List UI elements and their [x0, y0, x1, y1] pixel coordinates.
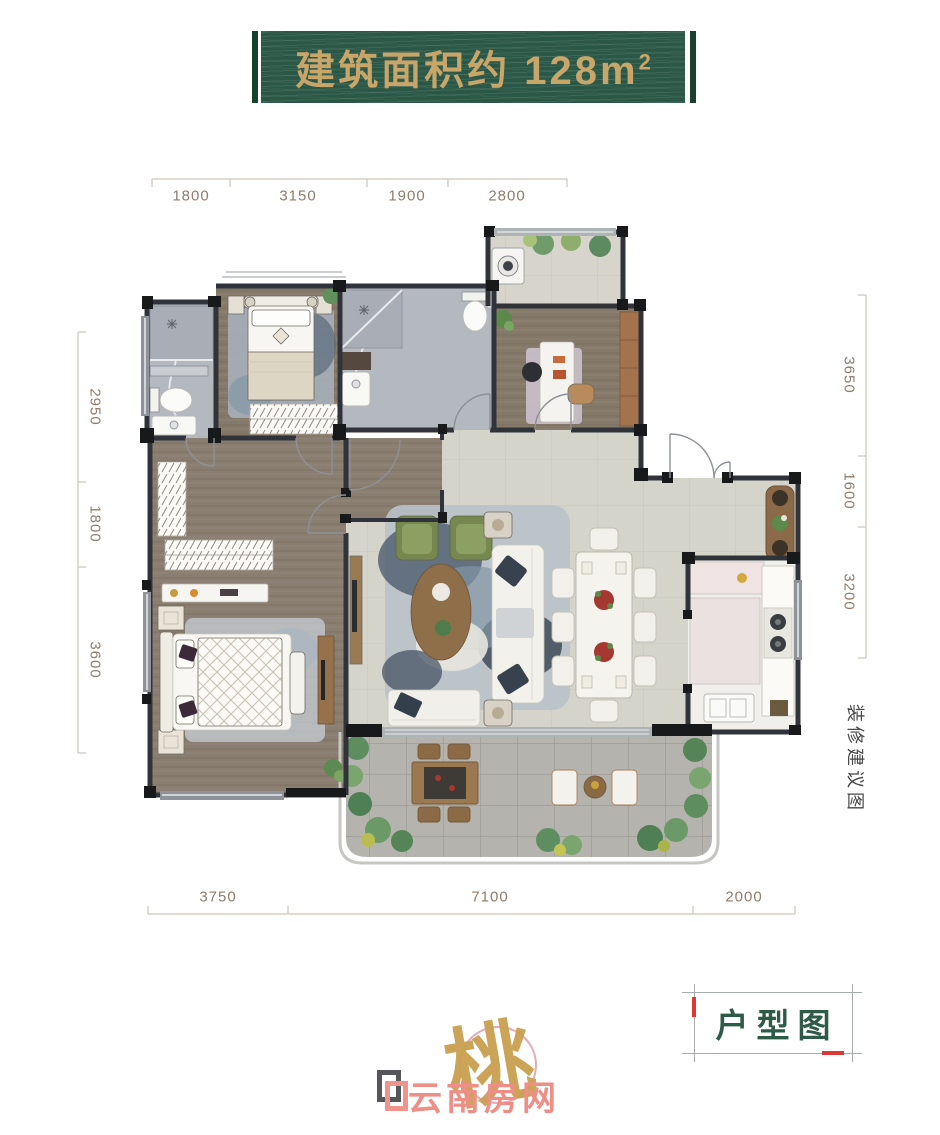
- study-wardrobe: [620, 312, 639, 426]
- outdoor-chair: [448, 744, 470, 759]
- study-desk: [540, 342, 574, 422]
- bedroom2-furniture: [228, 288, 339, 434]
- dim-left-2: 1800: [87, 505, 104, 542]
- bay-window: [222, 272, 346, 277]
- toilet-icon: [463, 301, 487, 331]
- dining-chair: [634, 568, 656, 598]
- watermark-logo-square-pink: [385, 1081, 408, 1111]
- bath1-counter: [150, 366, 208, 376]
- outdoor-chair: [418, 807, 440, 822]
- dim-left-1: 2950: [87, 388, 104, 425]
- kitchen-fixtures: [690, 562, 794, 722]
- dining-chair: [590, 700, 618, 722]
- desk-chair: [522, 362, 542, 382]
- dining-chair: [552, 568, 574, 598]
- coffee-table: [411, 564, 471, 660]
- dim-top-4: 2800: [488, 188, 525, 205]
- kitchen-sink: [704, 694, 754, 722]
- floorplan-page: 建筑面积约 128m2: [0, 0, 940, 1135]
- dim-left-3: 3600: [87, 641, 104, 678]
- outdoor-chair: [418, 744, 440, 759]
- dim-right-2: 1600: [841, 472, 858, 509]
- armchair: [396, 516, 438, 560]
- nightstand: [158, 606, 184, 630]
- floorplan-drawing: [0, 0, 940, 1135]
- dim-bottom-2: 7100: [471, 889, 508, 906]
- dining-chair: [552, 612, 574, 642]
- shower-area: [150, 306, 213, 360]
- bed-bench: [290, 652, 305, 714]
- dim-top-2: 3150: [279, 188, 316, 205]
- bowl-icon: [772, 490, 788, 506]
- dim-top-1: 1800: [172, 188, 209, 205]
- dining-chair: [552, 656, 574, 686]
- toilet-tank: [150, 388, 159, 412]
- dim-bottom-1: 3750: [199, 889, 236, 906]
- daybed-bench: [388, 690, 480, 726]
- tv-icon: [321, 660, 325, 700]
- toilet-icon: [160, 388, 192, 412]
- watermark-site-name: 云南房网: [408, 1071, 560, 1120]
- dim-right-3: 3200: [841, 573, 858, 610]
- bath2-sink: [342, 372, 370, 406]
- sofa: [492, 545, 544, 703]
- plant-icon: [589, 235, 611, 257]
- master-bed-headboard: [160, 632, 173, 732]
- entry-door: [670, 434, 714, 478]
- dining-chair: [590, 528, 618, 550]
- kitchen-cabinet: [690, 562, 764, 594]
- bowl-icon: [772, 540, 788, 556]
- bed2-blanket: [248, 352, 314, 400]
- dining-chair: [634, 656, 656, 686]
- dining-chair: [634, 612, 656, 642]
- nightstand: [158, 730, 184, 754]
- showerhead-icon: [167, 319, 177, 329]
- bed2-pillows: [252, 310, 310, 326]
- bath2-counter: [341, 352, 371, 370]
- outdoor-chair: [448, 807, 470, 822]
- toilet-tank: [462, 292, 488, 301]
- lounge-chair: [612, 770, 637, 805]
- dim-right-1: 3650: [841, 356, 858, 393]
- ottoman: [568, 384, 594, 404]
- showerhead-icon: [359, 305, 369, 315]
- tv-cabinet: [318, 636, 334, 724]
- lounge-chair: [552, 770, 577, 805]
- dim-top-3: 1900: [388, 188, 425, 205]
- plan-label-border-right: [852, 984, 853, 1062]
- dim-bottom-3: 2000: [725, 889, 762, 906]
- side-note: 装修建议图: [843, 704, 869, 814]
- kitchen-island: [690, 598, 760, 684]
- plan-label: 户型图: [694, 993, 852, 1053]
- entry-console: [766, 486, 794, 560]
- nightstand: [228, 296, 244, 314]
